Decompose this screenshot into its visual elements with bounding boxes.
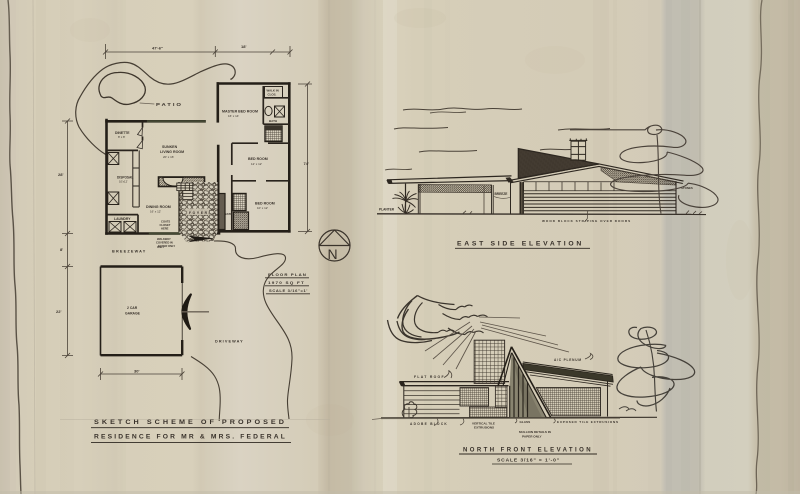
svg-text:LAUNDRY: LAUNDRY <box>114 217 131 221</box>
svg-text:28': 28' <box>58 172 63 177</box>
svg-text:BED ROOM: BED ROOM <box>255 202 275 206</box>
svg-text:CLOS.: CLOS. <box>268 93 277 97</box>
svg-text:SCALE 3/16" = 1'-0": SCALE 3/16" = 1'-0" <box>497 458 560 463</box>
svg-text:BATH: BATH <box>269 119 277 123</box>
svg-text:BED ROOM: BED ROOM <box>248 157 268 161</box>
svg-text:ADOBE BLOCK: ADOBE BLOCK <box>410 422 448 426</box>
svg-text:74': 74' <box>304 161 309 166</box>
svg-text:20' x 16': 20' x 16' <box>163 155 174 159</box>
svg-text:EXPOSED TILE EXTRUSIONS: EXPOSED TILE EXTRUSIONS <box>557 420 619 424</box>
svg-text:47'-6": 47'-6" <box>152 45 163 50</box>
svg-text:NORTH FRONT ELEVATION: NORTH FRONT ELEVATION <box>463 448 593 454</box>
svg-text:8' x 8': 8' x 8' <box>118 135 126 139</box>
svg-text:SUNKEN: SUNKEN <box>162 145 178 149</box>
svg-text:BREEZEWAY: BREEZEWAY <box>112 250 147 254</box>
svg-text:PATIO: PATIO <box>156 102 183 108</box>
svg-text:WALKWAY: WALKWAY <box>157 237 171 241</box>
svg-text:DINING ROOM: DINING ROOM <box>146 205 171 209</box>
svg-text:CLOSET: CLOSET <box>160 223 171 227</box>
svg-text:BREEZE: BREEZE <box>495 192 508 196</box>
svg-text:2 CAR: 2 CAR <box>127 306 138 310</box>
svg-text:12' x 12': 12' x 12' <box>251 162 262 166</box>
svg-text:FOYER: FOYER <box>189 211 209 215</box>
svg-text:1970 SQ FT: 1970 SQ FT <box>268 281 305 285</box>
svg-text:EXTRUSIONS: EXTRUSIONS <box>474 426 494 430</box>
svg-text:ONLY: ONLY <box>157 245 164 249</box>
svg-text:18': 18' <box>241 44 246 49</box>
svg-text:10'x12': 10'x12' <box>119 180 128 184</box>
svg-text:GARAGE: GARAGE <box>125 312 141 316</box>
svg-text:30': 30' <box>134 369 139 374</box>
svg-text:MASTER BED ROOM: MASTER BED ROOM <box>222 110 258 114</box>
svg-text:N: N <box>328 246 338 262</box>
svg-text:16' x 12': 16' x 12' <box>150 210 161 214</box>
svg-text:DRIVEWAY: DRIVEWAY <box>215 340 244 344</box>
svg-text:8': 8' <box>60 247 63 252</box>
svg-text:16' x 14': 16' x 14' <box>228 114 239 118</box>
svg-text:COATS: COATS <box>161 220 170 224</box>
svg-text:A/C PLENUM: A/C PLENUM <box>554 358 582 362</box>
svg-text:LIVING ROOM: LIVING ROOM <box>160 150 184 154</box>
svg-text:SCALE 3/16"=1': SCALE 3/16"=1' <box>269 289 308 293</box>
svg-text:FLAT ROOF: FLAT ROOF <box>414 375 445 379</box>
svg-text:COVERED IN: COVERED IN <box>156 241 173 245</box>
svg-text:BATH: BATH <box>225 212 233 216</box>
svg-text:SKETCH SCHEME OF PROPOSED: SKETCH SCHEME OF PROPOSED <box>94 419 287 426</box>
svg-text:HERE: HERE <box>161 227 169 231</box>
svg-text:FLOOR PLAN: FLOOR PLAN <box>268 273 307 277</box>
svg-text:GLASS: GLASS <box>520 420 531 424</box>
svg-text:PAPER ONLY: PAPER ONLY <box>522 434 543 438</box>
svg-text:10' x 12': 10' x 12' <box>257 206 268 210</box>
svg-text:PLANTER: PLANTER <box>379 208 395 212</box>
svg-text:RESIDENCE FOR MR & MRS. FEDE: RESIDENCE FOR MR & MRS. FEDERAL <box>94 434 287 441</box>
svg-text:22': 22' <box>56 309 61 314</box>
svg-text:EAST SIDE ELEVATION: EAST SIDE ELEVATION <box>457 242 584 248</box>
